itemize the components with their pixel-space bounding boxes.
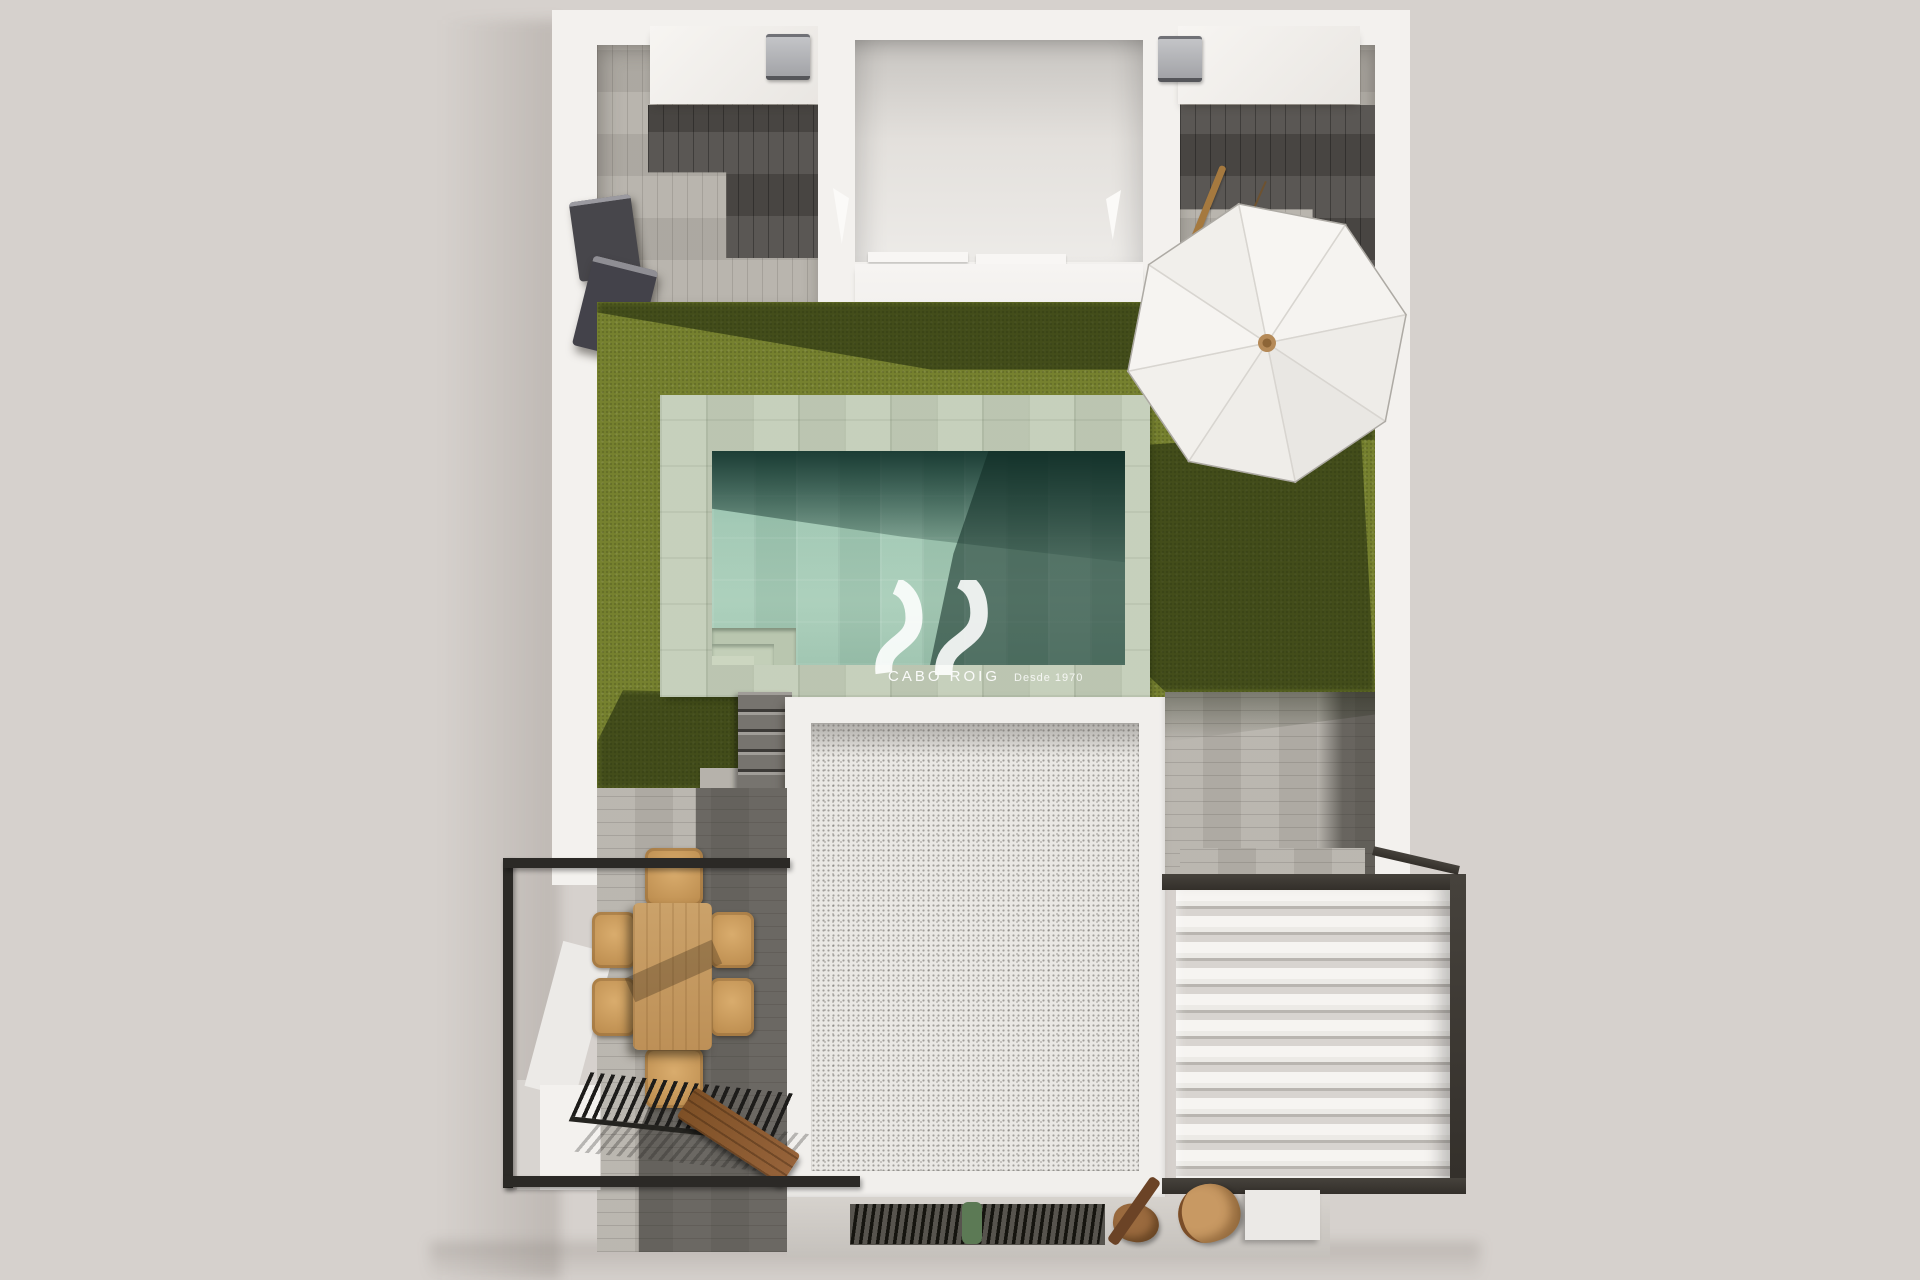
railing-top-bar: [503, 858, 790, 868]
building-roof-top-shading: [811, 723, 1139, 757]
railing-left-post: [503, 858, 513, 1188]
dining-chair-left-1: [592, 912, 636, 968]
watermark: CABO ROIGDesde 1970: [860, 580, 1120, 710]
building-roof-gravel: [811, 723, 1139, 1171]
outdoor-counter-right: [1178, 26, 1360, 104]
ac-unit-right: [1158, 36, 1202, 82]
entry-recess-floor: [855, 40, 1143, 262]
ground-wall-stub: [1245, 1190, 1320, 1240]
louver-slats: [1176, 890, 1450, 1178]
railing-bottom-bar: [503, 1176, 860, 1187]
planter-green: [962, 1202, 982, 1244]
watermark-brand: CABO ROIG: [888, 668, 1000, 685]
render-canvas: CABO ROIGDesde 1970: [0, 0, 1920, 1280]
stair-treads: [738, 692, 792, 794]
pool-step-3: [712, 656, 754, 665]
glass-door-ledge-right: [976, 254, 1066, 264]
watermark-tagline: Desde 1970: [1014, 672, 1083, 684]
louver-frame-top: [1162, 874, 1466, 890]
ac-unit-left: [766, 34, 810, 80]
agency-wave-logo-icon: [874, 580, 1024, 675]
dining-chair-head-top: [645, 848, 703, 906]
louver-frame-right: [1450, 874, 1466, 1194]
dining-chair-right-2: [710, 978, 754, 1036]
parasol-umbrella: [1110, 186, 1430, 506]
glass-door-ledge-left: [868, 252, 968, 262]
louver-deck-strip: [1180, 848, 1365, 876]
